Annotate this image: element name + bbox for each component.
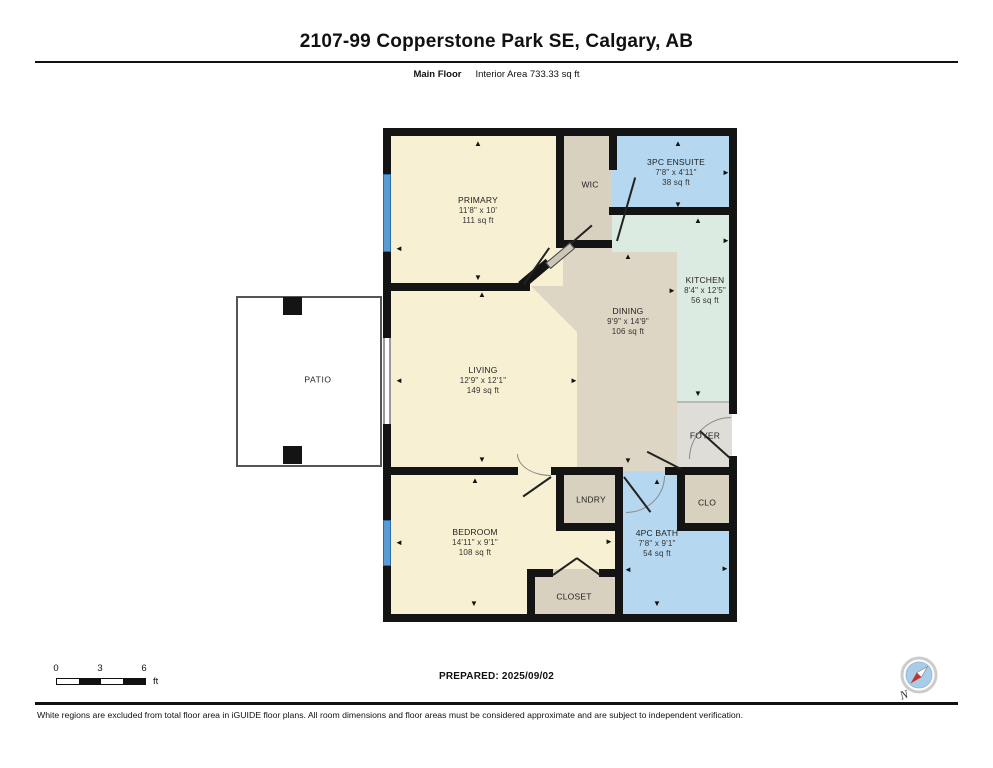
dimension-arrow: ▲ [478,291,486,299]
dimension-arrow: ▲ [653,478,661,486]
dimension-arrow: ► [605,538,613,546]
wall-segment [677,467,685,531]
dimension-arrow: ◄ [395,245,403,253]
wall-segment [615,523,623,622]
kitchen-label: KITCHEN8'4" x 12'5"56 sq ft [684,275,726,307]
wall-segment [283,297,302,315]
wall-segment [729,456,737,622]
wall-segment [383,566,391,622]
scale-bar: 0 3 6 ft [50,663,180,691]
dimension-arrow: ▲ [471,477,479,485]
scale-tick-3: 3 [94,663,106,674]
wall-segment [609,128,617,170]
wall-segment [383,467,518,475]
wic-label: WIC [581,179,598,190]
scale-unit-label: ft [153,676,158,687]
dimension-arrow: ◄ [395,377,403,385]
compass-icon: N [893,650,945,711]
dimension-arrow: ► [722,169,730,177]
closet-label: CLOSET [556,591,591,602]
wall-segment [527,569,535,622]
dining-label: DINING9'9" x 14'9"106 sq ft [607,306,649,338]
wall-segment [609,207,737,215]
dimension-arrow: ▲ [474,140,482,148]
wall-segment [383,614,737,622]
wall-segment [383,283,530,291]
dimension-arrow: ► [721,565,729,573]
window-marker [383,520,391,566]
wall-segment [665,467,737,475]
wall-segment [383,128,391,174]
dimension-arrow: ▼ [674,201,682,209]
dimension-arrow: ► [722,237,730,245]
dimension-arrow: ▲ [674,140,682,148]
bath-label: 4PC BATH7'8" x 9'1"54 sq ft [636,528,679,560]
wall-segment [383,250,391,338]
wall-segment [556,128,564,246]
bedroom-label: BEDROOM14'11" x 9'1"108 sq ft [452,527,498,559]
patio-label: PATIO [304,374,331,385]
dimension-arrow: ▲ [624,253,632,261]
primary-label: PRIMARY11'8" x 10'111 sq ft [458,195,498,227]
scale-tick-6: 6 [138,663,150,674]
clo-label: CLO [698,497,716,508]
dimension-arrow: ► [668,287,676,295]
foyer-label: FOYER [690,430,720,441]
wall-segment [599,569,616,577]
living-label: LIVING12'9" x 12'1"149 sq ft [460,365,506,397]
wall-segment [283,446,302,464]
floor-plan: PRIMARY11'8" x 10'111 sq ft WIC 3PC ENSU… [0,0,993,768]
dimension-arrow: ▼ [624,457,632,465]
ensuite-label: 3PC ENSUITE7'8" x 4'11"38 sq ft [647,157,705,189]
scale-tick-0: 0 [50,663,62,674]
footer-divider [35,702,958,705]
dimension-arrow: ▼ [478,456,486,464]
dimension-arrow: ▲ [694,217,702,225]
dimension-arrow: ▼ [474,274,482,282]
floor-plan-page: 2107-99 Copperstone Park SE, Calgary, AB… [0,0,993,768]
wall-segment [615,467,623,531]
dimension-arrow: ◄ [624,566,632,574]
wall-segment [556,523,623,531]
kitchen-foyer-divider [677,401,732,403]
window-marker [383,174,391,252]
scale-bar-segments [56,678,146,685]
wall-segment [556,467,564,531]
patio-sliding-door [383,338,391,424]
dimension-arrow: ◄ [395,539,403,547]
kitchen-floor-band [612,211,732,252]
laundry-label: LNDRY [576,494,606,505]
dimension-arrow: ▼ [653,600,661,608]
dimension-arrow: ▼ [694,390,702,398]
disclaimer-text: White regions are excluded from total fl… [37,710,960,720]
dimension-arrow: ► [570,377,578,385]
wall-segment [729,128,737,414]
dimension-arrow: ▼ [470,600,478,608]
wall-segment [677,523,737,531]
